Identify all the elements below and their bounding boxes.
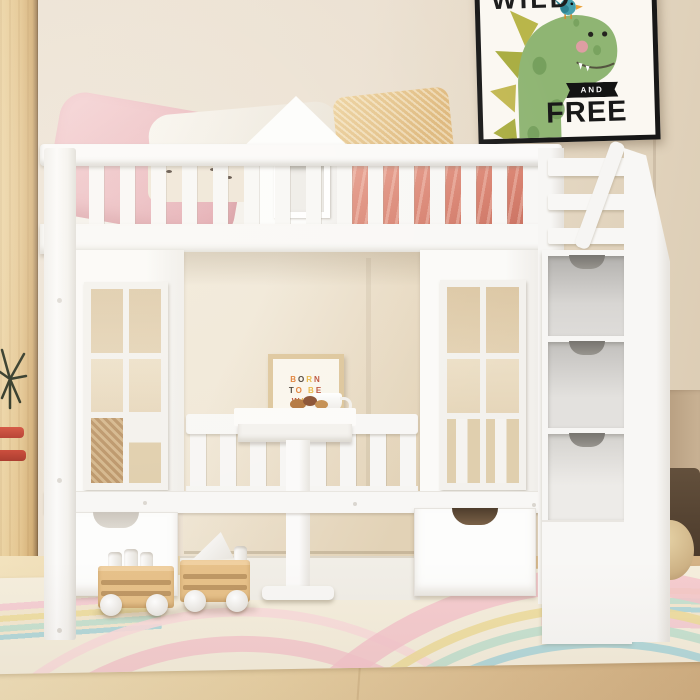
window-pane-basket-view [91, 418, 123, 483]
frame-letter: N [314, 375, 322, 384]
guardrail-spindles [58, 164, 550, 226]
window-pane [447, 419, 480, 483]
toy-wheel [146, 594, 168, 616]
frame-letter: T [289, 386, 296, 395]
toy-wheel [226, 590, 248, 612]
desk-pedestal-leg [286, 440, 310, 588]
desk-foot [262, 586, 334, 600]
poster-word-wild: WILD [483, 0, 580, 16]
staircase-base-panel [542, 520, 632, 644]
frame-letter: R [306, 375, 314, 384]
guardrail-top-rail [40, 144, 562, 166]
window-grid-left [84, 282, 168, 490]
frame-letter: O [296, 386, 304, 395]
stair-drawer-top [548, 256, 626, 336]
drawer-handle-cutout [569, 433, 605, 447]
bed-post-left [44, 148, 76, 640]
window-pane [486, 287, 519, 353]
frame-letter: O [298, 375, 306, 384]
dinosaur-poster: WILD AND FREE [473, 0, 660, 145]
toy-wheel [184, 590, 206, 612]
stair-drawer-bottom [548, 434, 626, 520]
frame-text-line: BORN [273, 374, 339, 385]
window-pane [91, 289, 123, 353]
wood-wall-panel [0, 0, 38, 575]
red-shelf-upper [0, 427, 24, 438]
red-shelf-lower [0, 450, 26, 461]
window-pane [447, 359, 480, 413]
window-pane [129, 418, 161, 483]
poster-word-free: FREE [534, 95, 639, 131]
window-pane [129, 359, 161, 412]
window-pane [486, 419, 519, 483]
stair-stringer [624, 148, 670, 642]
window-pane [91, 359, 123, 412]
window-pane [447, 287, 480, 353]
spiky-plant [0, 346, 28, 412]
drawer-handle-cutout [569, 255, 605, 269]
frame-letter: B [290, 375, 298, 384]
window-pane [486, 359, 519, 413]
window-pane [129, 289, 161, 353]
storage-drawer-right [414, 508, 536, 596]
drawer-handle-cutout [569, 341, 605, 355]
stair-drawer-middle [548, 342, 626, 428]
window-grid-right [440, 280, 526, 490]
toy-wheel [100, 594, 122, 616]
kids-room-loft-bed-photo: WILD AND FREE BORN TO BE WILD [0, 0, 700, 700]
